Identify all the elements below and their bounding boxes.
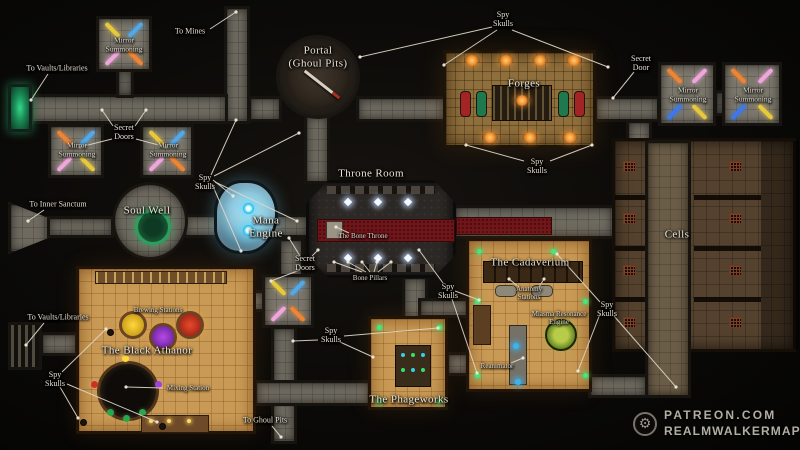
map-label-bone-pillars: Bone Pillars [353, 274, 387, 282]
map-label-throne-room: Throne Room [338, 168, 404, 181]
map-label-to-inner-sanctum: To Inner Sanctum [29, 199, 86, 208]
watermark-site: Patreon.com [664, 408, 800, 424]
watermark-name: RealmwalkerMaps [664, 424, 800, 440]
watermark: ⚙ Patreon.com RealmwalkerMaps [633, 408, 800, 439]
map-label-anatomy-stations: Anatomy Stations [516, 285, 542, 301]
map-label-spy-skulls-athanor: Spy Skulls [45, 370, 65, 388]
map-label-brewing-stations: Brewing Stations [134, 306, 182, 314]
map-label-mirror-summoning-5: Mirror Summoning [735, 86, 772, 103]
map-label-mirror-summoning-4: Mirror Summoning [670, 86, 707, 103]
map-label-cadaverium: The Cadaverium [490, 257, 569, 270]
map-label-bone-throne: The Bone Throne [338, 232, 387, 240]
map-label-to-vaults-top: To Vaults/Libraries [26, 63, 87, 72]
map-label-reanimator: Reanimator [481, 362, 514, 370]
map-label-miasma-engine: Miasma Resonance Engine [532, 310, 587, 326]
map-label-secret-doors-west: Secret Doors [114, 123, 134, 141]
label-layer: To MinesTo Vaults/LibrariesMirror Summon… [0, 0, 800, 450]
map-label-cells: Cells [665, 229, 690, 242]
map-label-mirror-summoning-3: Mirror Summoning [150, 141, 187, 158]
map-label-to-vaults-bottom: To Vaults/Libraries [27, 312, 88, 321]
map-label-forges: Forges [508, 78, 540, 91]
map-label-spy-skulls-cells: Spy Skulls [597, 300, 617, 318]
map-label-soul-well: Soul Well [124, 205, 171, 218]
map-label-secret-door-east: Secret Door [631, 54, 651, 72]
map-label-spy-skulls-forge: Spy Skulls [527, 157, 547, 175]
map-label-mana-engine: Mana Engine [249, 214, 283, 239]
map-label-black-athanor: The Black Athanor [102, 345, 193, 358]
watermark-text: Patreon.com RealmwalkerMaps [664, 408, 800, 439]
map-label-phageworks: The Phageworks [369, 394, 448, 407]
dungeon-map: To MinesTo Vaults/LibrariesMirror Summon… [0, 0, 800, 450]
map-label-mixing-station: Mixing Station [167, 384, 209, 392]
map-label-spy-skulls-top: Spy Skulls [493, 10, 513, 28]
map-label-mirror-summoning-2: Mirror Summoning [59, 141, 96, 158]
map-label-to-ghoul-pits: To Ghoul Pits [243, 415, 287, 424]
realmwalker-logo-icon: ⚙ [633, 412, 657, 436]
map-label-portal: Portal (Ghoul Pits) [289, 44, 348, 69]
map-label-to-mines: To Mines [175, 26, 205, 35]
map-label-spy-skulls-west: Spy Skulls [195, 173, 215, 191]
map-label-mirror-summoning-1: Mirror Summoning [106, 36, 143, 53]
map-label-secret-doors-throne: Secret Doors [295, 254, 315, 272]
map-label-spy-skulls-cadaverium: Spy Skulls [438, 282, 458, 300]
map-label-spy-skulls-phageworks: Spy Skulls [321, 326, 341, 344]
